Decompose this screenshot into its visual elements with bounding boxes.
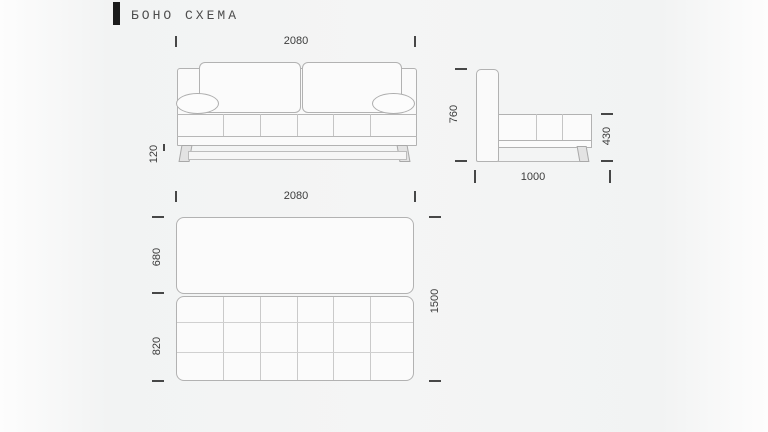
page-title: БОНО СХЕМА: [131, 8, 239, 23]
grid-line: [260, 297, 261, 380]
dim-tick: [601, 113, 613, 115]
bono-sofa-schematic: БОНО СХЕМА 2080 120: [0, 0, 768, 432]
dim-leg-height: 120: [148, 134, 160, 174]
dim-tick: [429, 380, 441, 382]
bed-foldout-section: [176, 296, 414, 381]
grid-line: [370, 297, 371, 380]
dim-tick: [601, 160, 613, 162]
seat-divider: [562, 114, 563, 140]
dim-tick: [455, 68, 467, 70]
grid-line: [177, 352, 413, 353]
seat-bottom-line: [177, 136, 417, 137]
dim-tick: [414, 191, 416, 202]
dim-tick: [175, 36, 177, 47]
armrest-pillow-right: [372, 93, 415, 114]
bed-mechanism-rail: [188, 151, 407, 160]
dim-total-depth: 1500: [429, 281, 441, 321]
seat-divider: [223, 114, 224, 136]
seat-divider: [333, 114, 334, 136]
dim-seat-section-depth: 680: [151, 237, 163, 277]
side-seat-band: [498, 114, 592, 141]
dim-tick: [455, 160, 467, 162]
dim-tick: [474, 170, 476, 183]
dim-tick: [609, 170, 611, 183]
dim-tick: [175, 191, 177, 202]
seat-divider: [260, 114, 261, 136]
dim-tick: [429, 216, 441, 218]
dim-side-height: 760: [448, 94, 460, 134]
seat-divider: [297, 114, 298, 136]
dim-tick: [414, 36, 416, 47]
armrest-pillow-left: [176, 93, 219, 114]
dim-front-width: 2080: [276, 35, 316, 47]
grid-line: [333, 297, 334, 380]
side-backrest: [476, 69, 499, 162]
dim-tick: [163, 144, 165, 151]
grid-line: [297, 297, 298, 380]
side-bottom-line: [498, 161, 582, 162]
seat-divider: [536, 114, 537, 140]
dim-tick: [152, 292, 164, 294]
bed-seat-section: [176, 217, 414, 294]
dim-bed-section-depth: 820: [151, 326, 163, 366]
dim-side-depth: 1000: [513, 171, 553, 183]
dim-seat-height: 430: [601, 116, 613, 156]
title-accent-bar: [113, 2, 120, 25]
side-leg: [577, 146, 590, 162]
grid-line: [177, 322, 413, 323]
dim-tick: [152, 380, 164, 382]
dim-top-width: 2080: [276, 190, 316, 202]
grid-line: [223, 297, 224, 380]
dim-tick: [152, 216, 164, 218]
seat-divider: [370, 114, 371, 136]
